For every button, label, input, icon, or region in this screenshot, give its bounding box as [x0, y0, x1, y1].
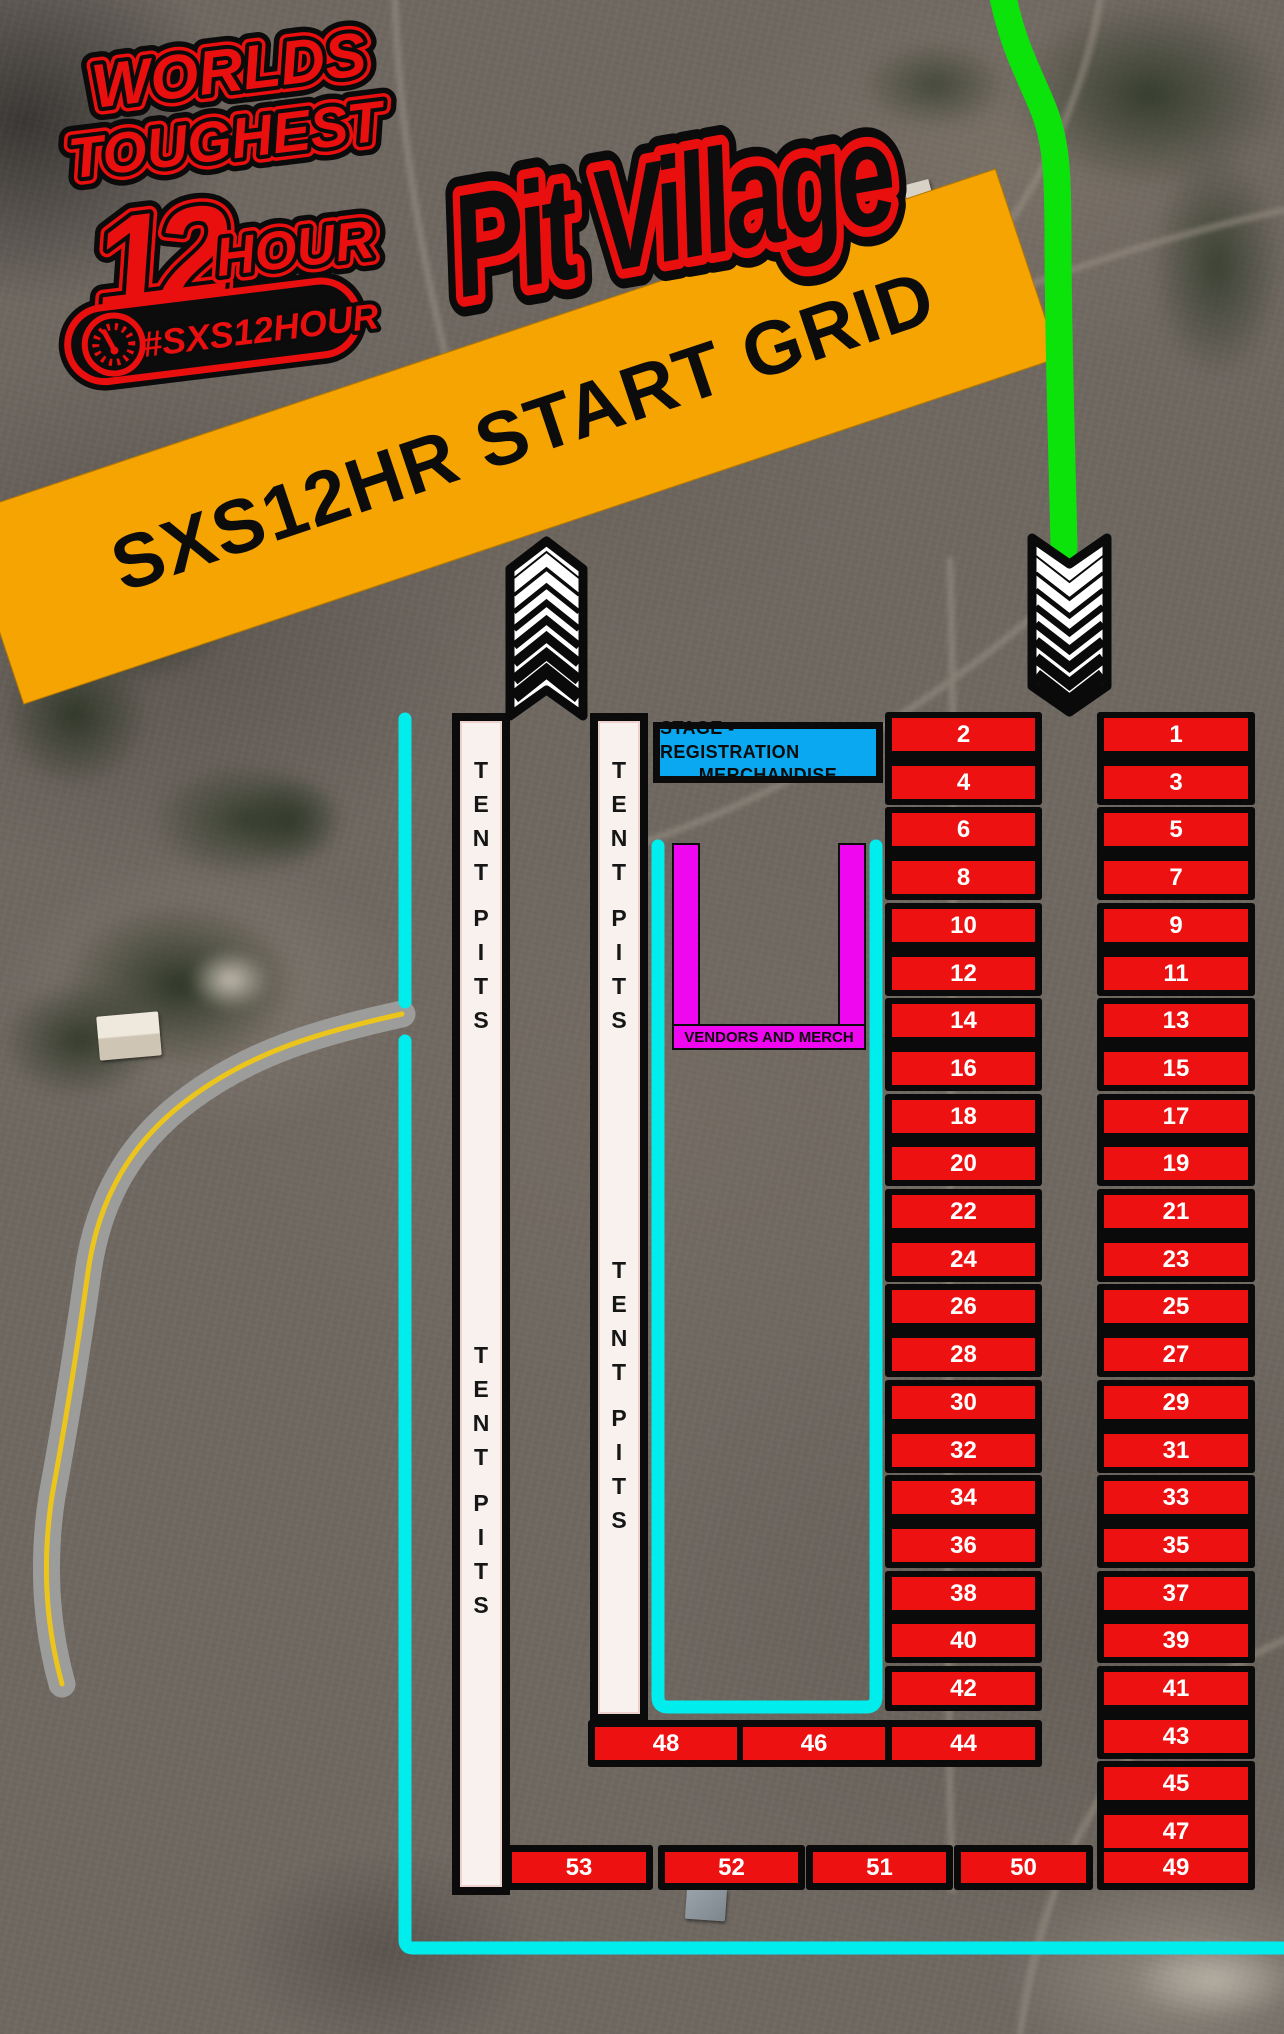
lane-inner-u	[658, 846, 876, 1707]
pit-lane-outline	[405, 719, 1283, 1948]
pit-entry-arrow-down-icon	[1032, 538, 1107, 712]
pit-village-map: SXS12HR START GRID STAGE - REGISTRATION …	[0, 0, 1284, 2034]
lane-left-and-bottom	[405, 1041, 1283, 1948]
track-entry-line	[1002, 0, 1064, 548]
svg-text:Pit Village: Pit Village	[439, 92, 905, 329]
map-overlay: WORLDS TOUGHEST 12 HOUR WORLDS WORLDS WO…	[0, 0, 1284, 2034]
logo-word-hour: HOUR HOUR HOUR	[212, 209, 377, 288]
pit-exit-arrow-up-icon	[510, 541, 583, 716]
event-logo: WORLDS TOUGHEST 12 HOUR WORLDS WORLDS WO…	[33, 18, 414, 385]
page-title: Pit Village Pit Village Pit Village	[439, 92, 905, 329]
svg-text:HOUR: HOUR	[212, 209, 377, 288]
speedometer-wheel-icon	[81, 312, 146, 377]
